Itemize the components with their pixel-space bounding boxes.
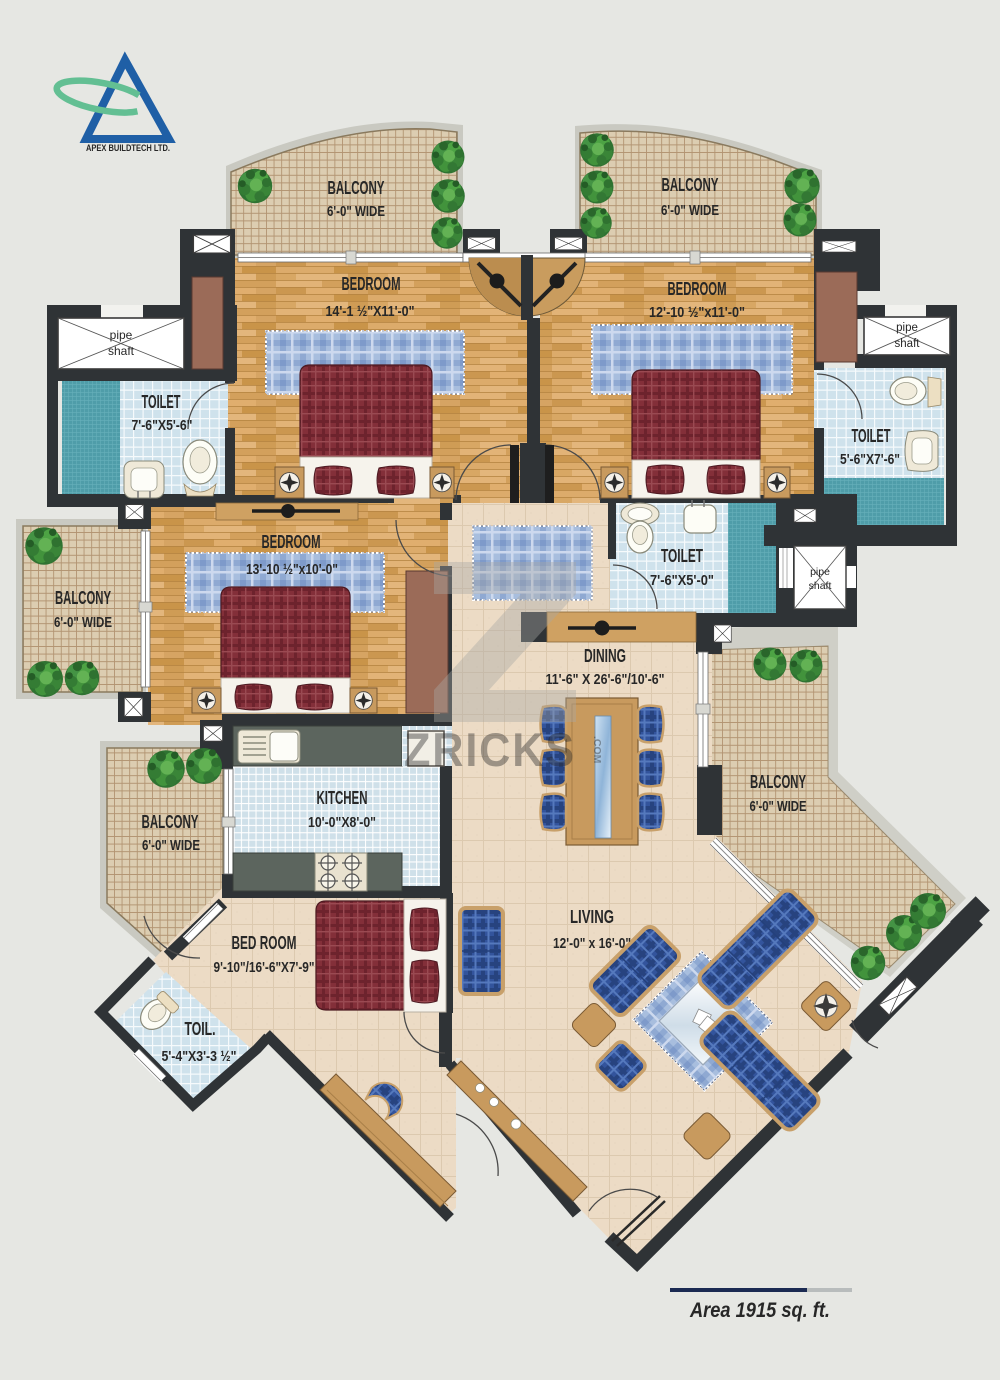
svg-text:pipe: pipe — [810, 566, 830, 578]
svg-text:TOILET: TOILET — [142, 392, 181, 412]
svg-text:APEX BUILDTECH LTD.: APEX BUILDTECH LTD. — [86, 143, 170, 153]
svg-text:5'-6"X7'-6": 5'-6"X7'-6" — [840, 451, 900, 468]
svg-text:6'-0" WIDE: 6'-0" WIDE — [661, 202, 719, 219]
svg-text:7'-6"X5'-6": 7'-6"X5'-6" — [132, 417, 193, 434]
svg-text:BALCONY: BALCONY — [55, 588, 111, 608]
svg-text:BALCONY: BALCONY — [750, 772, 806, 792]
svg-text:BEDROOM: BEDROOM — [342, 274, 401, 294]
svg-text:Area 1915 sq. ft.: Area 1915 sq. ft. — [689, 1299, 830, 1322]
svg-text:shaft: shaft — [895, 338, 921, 350]
svg-text:.COM: .COM — [591, 736, 603, 764]
svg-text:BALCONY: BALCONY — [142, 812, 199, 832]
svg-text:14'-1 ½"X11'-0": 14'-1 ½"X11'-0" — [326, 303, 415, 320]
svg-text:KITCHEN: KITCHEN — [317, 788, 368, 808]
svg-text:TOILET: TOILET — [661, 546, 703, 566]
svg-text:12'-10 ½"x11'-0": 12'-10 ½"x11'-0" — [649, 304, 745, 321]
svg-text:6'-0" WIDE: 6'-0" WIDE — [54, 614, 112, 631]
svg-text:BALCONY: BALCONY — [328, 178, 385, 198]
svg-text:BEDROOM: BEDROOM — [668, 279, 727, 299]
svg-text:6'-0" WIDE: 6'-0" WIDE — [327, 203, 385, 220]
svg-text:6'-0" WIDE: 6'-0" WIDE — [750, 798, 807, 815]
svg-text:13'-10 ½"x10'-0": 13'-10 ½"x10'-0" — [246, 561, 338, 578]
svg-text:DINING: DINING — [584, 646, 626, 666]
svg-text:TOILET: TOILET — [852, 426, 891, 446]
svg-text:LIVING: LIVING — [570, 907, 614, 927]
svg-text:12'-0" x 16'-0": 12'-0" x 16'-0" — [553, 935, 631, 952]
svg-text:BED ROOM: BED ROOM — [232, 933, 297, 953]
svg-text:11'-6" X 26'-6"/10'-6": 11'-6" X 26'-6"/10'-6" — [546, 671, 665, 688]
svg-text:ZRICKS: ZRICKS — [404, 723, 576, 776]
svg-text:9'-10"/16'-6"X7'-9": 9'-10"/16'-6"X7'-9" — [214, 959, 315, 976]
svg-text:5'-4"X3'-3 ½": 5'-4"X3'-3 ½" — [162, 1048, 237, 1065]
svg-text:7'-6"X5'-0": 7'-6"X5'-0" — [650, 572, 714, 589]
svg-text:10'-0"X8'-0": 10'-0"X8'-0" — [308, 814, 376, 831]
svg-text:BALCONY: BALCONY — [662, 175, 719, 195]
svg-text:shaft: shaft — [108, 344, 135, 358]
svg-text:shaft: shaft — [809, 580, 832, 592]
svg-text:TOIL.: TOIL. — [185, 1019, 216, 1039]
svg-text:pipe: pipe — [110, 328, 133, 342]
svg-text:pipe: pipe — [896, 322, 918, 334]
svg-text:BEDROOM: BEDROOM — [262, 532, 321, 552]
svg-text:6'-0" WIDE: 6'-0" WIDE — [142, 837, 200, 854]
